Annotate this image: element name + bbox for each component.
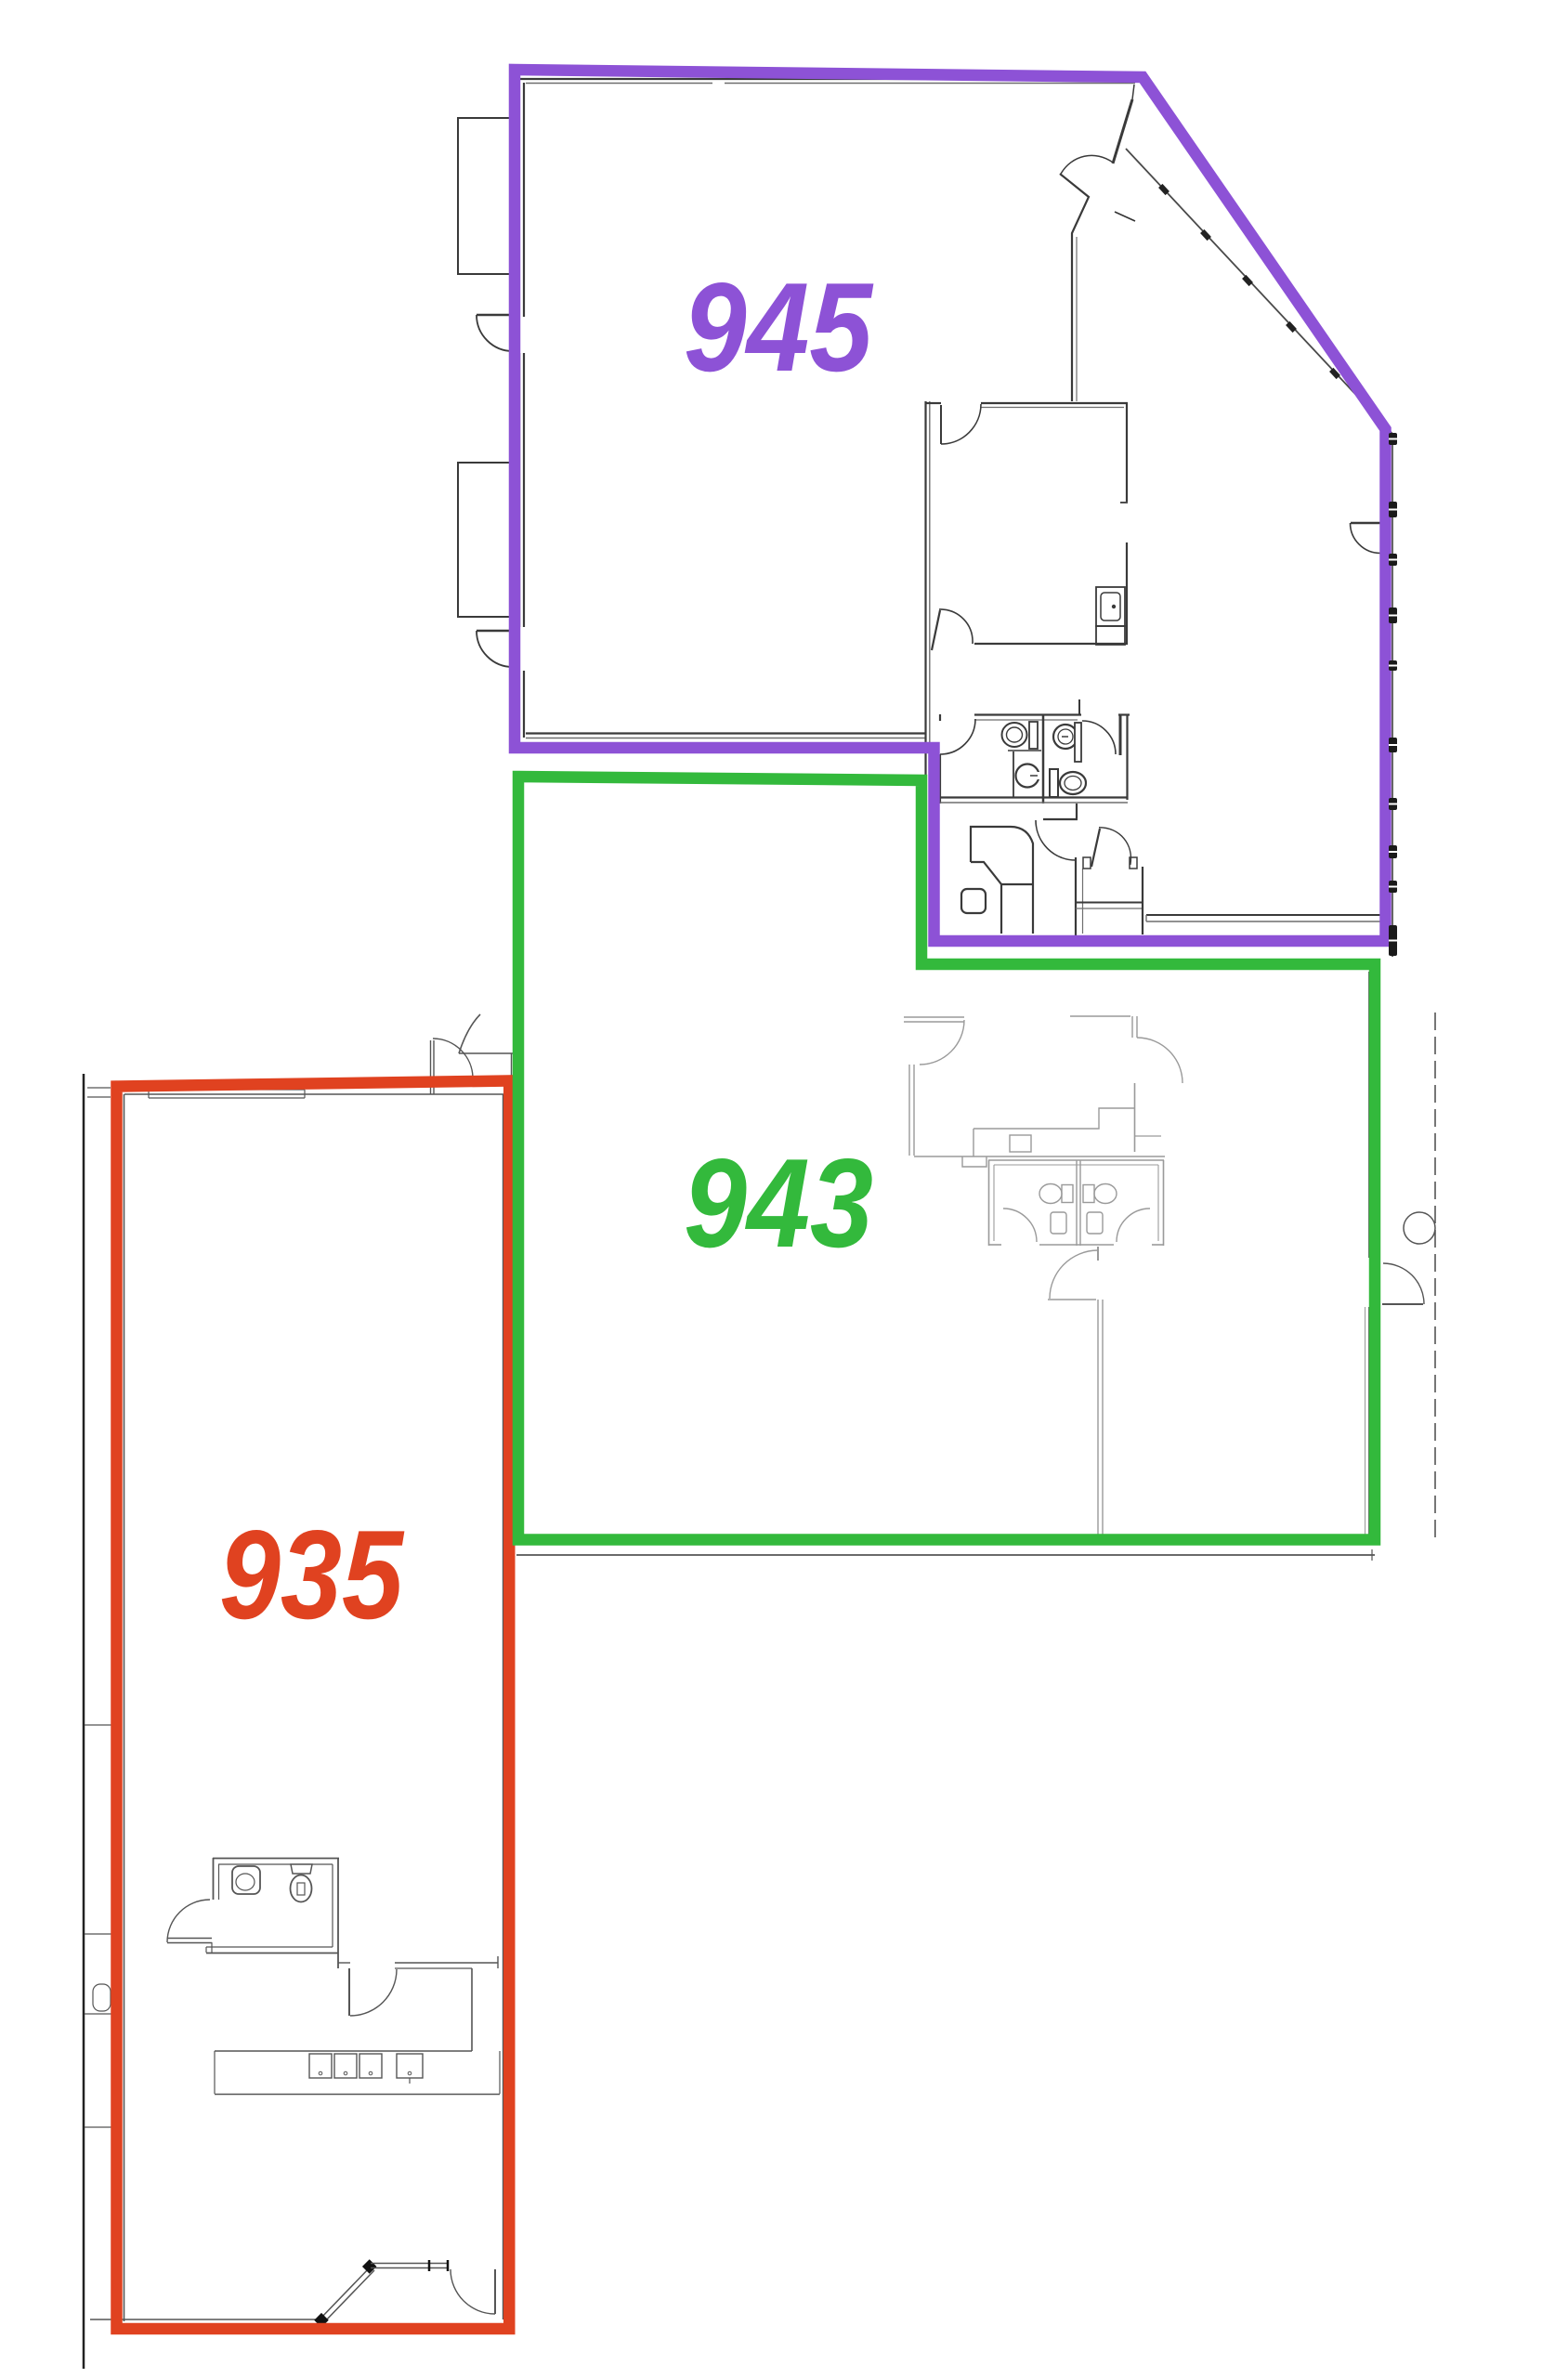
svg-text:945: 945 [684, 256, 874, 398]
svg-text:935: 935 [219, 1504, 405, 1645]
svg-text:943: 943 [684, 1132, 873, 1274]
